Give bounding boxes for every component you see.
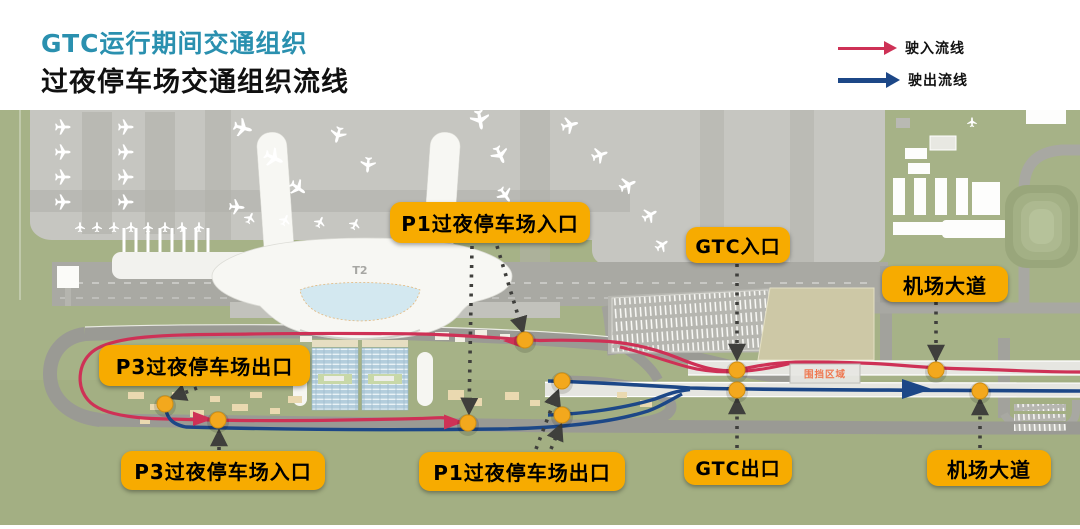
callout-p3-exit: P3过夜停车场出口 <box>99 345 310 386</box>
enclosure-label: 围挡区域 <box>804 369 846 381</box>
slide: { "header": { "title": "GTC运行期间交通组织", "s… <box>0 0 1080 525</box>
parking-rows-se <box>1014 404 1066 431</box>
dot-gtc-exit <box>729 382 745 398</box>
legend-outbound: 驶出流线 <box>838 70 968 90</box>
outbound-arrow-icon <box>838 72 900 88</box>
dot-p3-exit <box>157 396 173 412</box>
callout-avenue-bottom: 机场大道 <box>927 450 1051 486</box>
dot-avenue-bottom <box>972 383 988 399</box>
dot-avenue-top <box>928 362 944 378</box>
west-building <box>57 266 79 288</box>
callout-gtc-exit: GTC出口 <box>684 450 792 485</box>
callout-avenue-top: 机场大道 <box>882 266 1008 302</box>
legend: 驶入流线 驶出流线 <box>830 28 1060 98</box>
tan-lot <box>758 288 874 360</box>
callout-p1-exit: P1过夜停车场出口 <box>419 452 625 491</box>
terminal-label: T2 <box>352 264 367 277</box>
legend-inbound: 驶入流线 <box>838 38 965 58</box>
dot-p3-entrance <box>210 412 226 428</box>
legend-inbound-label: 驶入流线 <box>905 38 965 58</box>
inbound-arrow-icon <box>838 41 897 55</box>
callout-p1-entrance: P1过夜停车场入口 <box>390 202 590 243</box>
callout-p3-entrance: P3过夜停车场入口 <box>121 451 325 490</box>
callout-gtc-entrance: GTC入口 <box>686 227 790 263</box>
legend-outbound-label: 驶出流线 <box>908 70 968 90</box>
dot-p1-entrance-b <box>460 415 476 431</box>
page-subtitle: 过夜停车场交通组织流线 <box>41 60 349 99</box>
dot-p1-exit-a <box>554 373 570 389</box>
enclosure-zone: 围挡区域 <box>790 364 860 383</box>
page-title: GTC运行期间交通组织 <box>41 24 307 60</box>
dot-p1-entrance-a <box>517 332 533 348</box>
dot-p1-exit-b <box>554 407 570 423</box>
dot-gtc-entrance <box>729 362 745 378</box>
parking-lot <box>612 290 776 352</box>
